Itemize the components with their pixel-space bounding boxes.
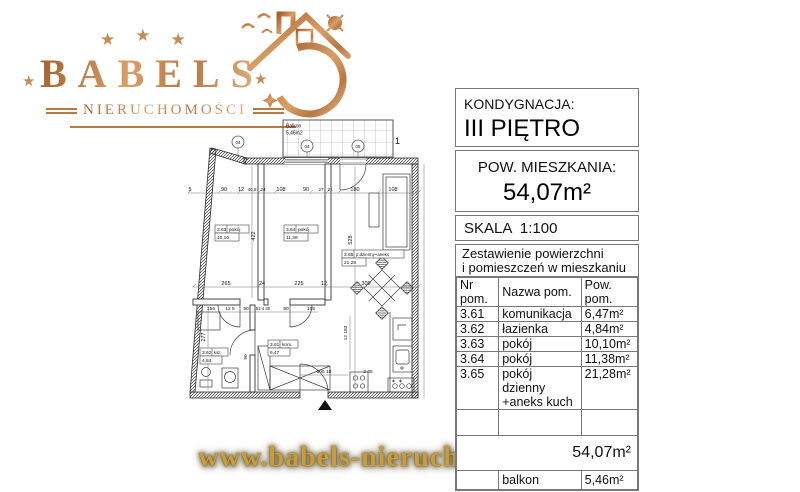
- rooms-table-header: Nr pom. Nazwa pom. Pow. pom.: [457, 278, 638, 307]
- sun-icon: [328, 16, 342, 30]
- room-area: 10,10: [217, 235, 229, 241]
- room-type: pokój: [298, 227, 309, 233]
- bird-icon: [262, 30, 272, 33]
- dim-label: 108: [388, 187, 397, 193]
- stove: [388, 378, 414, 392]
- room-label-3-62: 3.62 łaz. 4,84: [200, 348, 228, 364]
- dim-label: 108: [276, 187, 285, 193]
- balcony-label: Balkon: [286, 124, 302, 130]
- rooms-table-title-line2: i pomieszczeń w mieszkaniu: [462, 261, 632, 275]
- empty-cell: [457, 410, 499, 436]
- room-type: pokój: [229, 227, 240, 233]
- decorative-line: [46, 108, 77, 114]
- room-area: 21,28m²: [581, 367, 637, 410]
- dim-label: 46,5: [248, 187, 257, 192]
- room-nr: 3.64: [457, 352, 499, 367]
- dim-label: 5: [188, 187, 191, 193]
- room-label-3-65: 3.65 p.dzienny+aneks 21,28: [342, 250, 404, 266]
- table-row: 3.65 pokój dzienny +aneks kuch 21,28m²: [457, 367, 638, 410]
- room-nr: 3.63: [457, 337, 499, 352]
- info-panel: KONDYGNACJA: III PIĘTRO POW. MIESZKANIA:…: [455, 88, 639, 492]
- bird-icon: [242, 25, 254, 29]
- table-row: 3.63 pokój 10,10m²: [457, 337, 638, 352]
- room-area: 4,84: [202, 358, 212, 364]
- empty-cell: [457, 471, 499, 490]
- col-header-name: Nazwa pom.: [499, 278, 581, 307]
- room-area: 4,84m²: [581, 322, 637, 337]
- dim-label: 21: [327, 187, 333, 192]
- star-icon: ★: [171, 30, 186, 50]
- dim-label: 90: [303, 187, 309, 193]
- balcony: Balkon 5,46m2 1: [283, 120, 400, 157]
- table-row: 3.64 pokój 11,38m²: [457, 352, 638, 367]
- logo-stars-row: ★★★: [100, 30, 206, 50]
- dim-label: 422: [251, 231, 257, 240]
- rooms-table-box: Zestawienie powierzchni i pomieszczeń w …: [455, 244, 639, 491]
- total-area: 54,07m²: [457, 436, 638, 471]
- kitchen-units: [350, 312, 414, 392]
- star-icon: ★: [135, 26, 150, 46]
- dim-label: 90: [283, 306, 289, 312]
- room-labels: 3.63 pokój 10,10 3.64 pokój 11,38 3.65 p…: [200, 225, 404, 364]
- dim-label: 265: [221, 281, 230, 287]
- balcony-name: balkon: [499, 471, 581, 490]
- room-id: 3.62: [202, 350, 212, 356]
- col-header-nr: Nr pom.: [457, 278, 499, 307]
- room-area: 11,38: [286, 235, 298, 241]
- dim-label: 105 10: [317, 369, 332, 375]
- dim-label: 12 5: [225, 306, 235, 312]
- room-name: pokój: [499, 352, 581, 367]
- dim-label: 277: [201, 332, 207, 341]
- bird-icon: [258, 15, 270, 19]
- room-id: 3.65: [344, 252, 354, 258]
- room-id: 3.63: [217, 227, 227, 233]
- dim-label: 90: [221, 187, 227, 193]
- dim-label: 180: [350, 187, 359, 193]
- room-nr: 3.62: [457, 322, 499, 337]
- window-marker-label: 05: [355, 144, 361, 149]
- dim-label: 24: [259, 281, 265, 287]
- room-label-3-64: 3.64 pokój 11,38: [284, 225, 318, 241]
- window-marker-label: 04: [304, 144, 310, 149]
- window-marker-label: 04: [235, 140, 241, 145]
- dim-label: 12: [238, 187, 244, 193]
- door-arcs: [218, 164, 366, 392]
- room-type: kom.: [282, 342, 292, 348]
- dim-label: 90: [243, 354, 249, 360]
- dim-label: 156: [207, 306, 215, 312]
- washer: [350, 372, 368, 392]
- dim-label: 309: [361, 281, 370, 287]
- dim-label: 90: [243, 306, 249, 312]
- fridge: [393, 318, 412, 340]
- scale-box: SKALA 1:100: [455, 215, 639, 241]
- dim-label: 528: [348, 235, 354, 244]
- cabinet: [369, 193, 379, 227]
- entry-marker: [318, 400, 332, 410]
- room-label-3-61: 3.61 kom. 6,47: [268, 340, 298, 356]
- room-name: pokój: [499, 337, 581, 352]
- dim-label: 24: [260, 187, 266, 192]
- area-value: 54,07m²: [456, 179, 638, 207]
- room-id: 3.61: [270, 342, 280, 348]
- table-row: 3.62 łazienka 4,84m²: [457, 322, 638, 337]
- floor-label: KONDYGNACJA:: [464, 96, 630, 112]
- room-area: 6,47: [270, 350, 280, 356]
- dim-label: 105: [307, 306, 315, 312]
- window-symbols: [285, 158, 366, 164]
- dim-label: 2 65: [363, 369, 373, 375]
- empty-cell: [581, 410, 637, 436]
- toilet: [202, 368, 211, 377]
- brand-name: BABELS: [40, 50, 264, 97]
- table-balcony-row: balkon 5,46m²: [457, 471, 638, 490]
- exterior-walls: [190, 148, 418, 398]
- rooms-table-title-line1: Zestawienie powierzchni: [462, 247, 632, 261]
- room-area: 10,10m²: [581, 337, 637, 352]
- room-type: p.dzienny+aneks: [356, 252, 390, 257]
- floor-value: III PIĘTRO: [464, 115, 630, 143]
- table-filler-row: [457, 410, 638, 436]
- room-name: pokój dzienny +aneks kuch: [499, 367, 581, 410]
- room-name: łazienka: [499, 322, 581, 337]
- balcony-area-label: 5,46m2: [286, 131, 303, 137]
- floor-plan: Balkon 5,46m2 1 04 04 05: [178, 106, 450, 428]
- dim-label: 27: [318, 187, 324, 192]
- rooms-table-title: Zestawienie powierzchni i pomieszczeń w …: [456, 245, 638, 277]
- swoosh-circle-icon: [280, 46, 343, 114]
- dim-label: 52 4 30: [256, 306, 271, 311]
- table-row: 3.61 komunikacja 6,47m²: [457, 307, 638, 322]
- table-total-row: 54,07m²: [457, 436, 638, 471]
- flyer-page: ★★★ ★ ★ BABELS NIERUCHOMOŚCI: [0, 0, 800, 492]
- star-icon: ★: [100, 30, 115, 50]
- dim-label: 12 183: [343, 325, 349, 340]
- dim-label: 1: [395, 136, 400, 146]
- star-icon: ★: [22, 72, 35, 90]
- sofa: [383, 174, 410, 250]
- area-label: POW. MIESZKANIA:: [456, 159, 638, 176]
- floor-box: KONDYGNACJA: III PIĘTRO: [455, 88, 639, 147]
- room-area: 6,47m²: [581, 307, 637, 322]
- room-nr: 3.61: [457, 307, 499, 322]
- room-area: 21,28: [344, 260, 356, 266]
- area-box: POW. MIESZKANIA: 54,07m²: [455, 150, 639, 212]
- dim-label: 225: [294, 281, 303, 287]
- room-nr: 3.65: [457, 367, 499, 410]
- balcony-area: 5,46m²: [581, 471, 637, 490]
- dim-label: 12: [321, 281, 327, 287]
- room-type: łaz.: [214, 350, 221, 356]
- rooms-table: Nr pom. Nazwa pom. Pow. pom. 3.61 komuni…: [456, 277, 638, 490]
- room-name-line1: pokój dzienny: [502, 367, 577, 395]
- room-name: komunikacja: [499, 307, 581, 322]
- col-header-area: Pow. pom.: [581, 278, 637, 307]
- room-name-line2: +aneks kuch: [502, 395, 577, 409]
- room-label-3-63: 3.63 pokój 10,10: [215, 225, 249, 241]
- room-id: 3.64: [286, 227, 296, 233]
- empty-cell: [499, 410, 581, 436]
- room-area: 11,38m²: [581, 352, 637, 367]
